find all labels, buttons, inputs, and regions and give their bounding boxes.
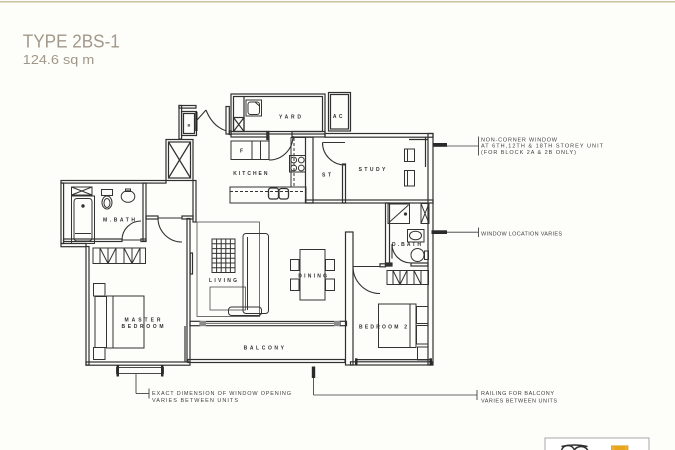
- svg-text:AT 6TH,12TH & 18TH STOREY UNIT: AT 6TH,12TH & 18TH STOREY UNIT: [481, 144, 604, 150]
- svg-text:VARIES BETWEEN UNITS: VARIES BETWEEN UNITS: [481, 398, 557, 404]
- svg-text:WINDOW LOCATION VARIES: WINDOW LOCATION VARIES: [481, 232, 562, 238]
- svg-text:F: F: [240, 149, 243, 155]
- svg-text:B: B: [188, 123, 191, 128]
- svg-text:BEDROOM 2: BEDROOM 2: [359, 325, 407, 331]
- svg-text:EXACT DIMENSION OF WINDOW OPEN: EXACT DIMENSION OF WINDOW OPENING: [152, 391, 291, 397]
- svg-text:NON-CORNER WINDOW: NON-CORNER WINDOW: [481, 138, 558, 144]
- svg-text:VARIES BETWEEN UNITS: VARIES BETWEEN UNITS: [152, 398, 238, 404]
- svg-text:TYPE 2BS-1: TYPE 2BS-1: [23, 30, 120, 51]
- svg-text:RAILING FOR BALCONY: RAILING FOR BALCONY: [481, 391, 554, 397]
- svg-text:(FOR BLOCK 2A & 2B ONLY): (FOR BLOCK 2A & 2B ONLY): [481, 150, 576, 156]
- svg-text:124.6 sq m: 124.6 sq m: [23, 53, 95, 67]
